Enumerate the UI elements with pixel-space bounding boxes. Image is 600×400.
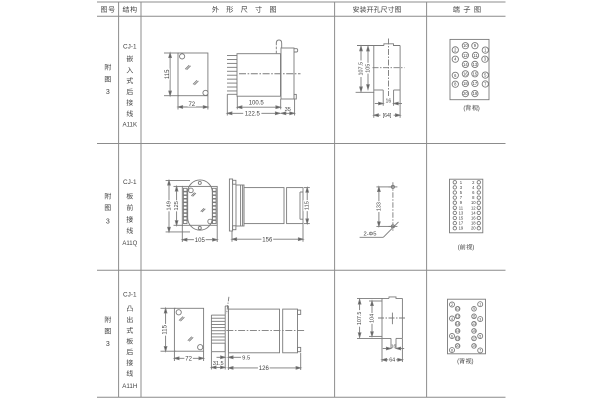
svg-text:[64]: [64] <box>383 113 392 119</box>
svg-text:10: 10 <box>463 43 468 48</box>
svg-text:): ) <box>472 245 474 251</box>
svg-text:107.5: 107.5 <box>357 312 363 326</box>
svg-text:15: 15 <box>473 71 478 76</box>
svg-text:126: 126 <box>259 366 270 372</box>
svg-text:16: 16 <box>391 344 397 349</box>
svg-text:115: 115 <box>165 69 171 79</box>
svg-text:14: 14 <box>463 62 468 67</box>
svg-text:CJ-1: CJ-1 <box>123 179 137 186</box>
svg-text:(: ( <box>457 359 459 365</box>
svg-text:3: 3 <box>106 341 110 348</box>
svg-text:CJ-1: CJ-1 <box>123 292 137 299</box>
svg-text:4: 4 <box>451 317 453 321</box>
svg-text:35: 35 <box>285 107 291 113</box>
svg-text:9: 9 <box>473 307 475 311</box>
svg-text:19: 19 <box>473 91 478 96</box>
svg-text:9.5: 9.5 <box>242 355 250 361</box>
svg-text:2-Φ5: 2-Φ5 <box>363 232 376 238</box>
svg-text:72: 72 <box>188 102 195 108</box>
svg-text:20: 20 <box>456 344 460 348</box>
svg-text:72: 72 <box>185 356 192 362</box>
svg-text:A11Q: A11Q <box>122 241 137 247</box>
svg-text:1: 1 <box>479 302 481 306</box>
svg-text:2: 2 <box>451 303 453 307</box>
svg-text:16: 16 <box>386 98 392 104</box>
svg-text:133: 133 <box>376 202 382 211</box>
svg-text:12: 12 <box>456 314 460 318</box>
svg-text:16: 16 <box>456 329 460 333</box>
svg-text:115: 115 <box>162 324 168 334</box>
svg-text:13: 13 <box>472 322 476 326</box>
svg-text:18: 18 <box>456 337 460 341</box>
svg-text:(: ( <box>463 106 465 112</box>
svg-text:156: 156 <box>262 237 273 243</box>
svg-text:17: 17 <box>473 81 478 86</box>
svg-text:14: 14 <box>456 322 460 326</box>
svg-text:12: 12 <box>463 53 468 58</box>
svg-text:6: 6 <box>451 334 453 338</box>
svg-text:105: 105 <box>195 238 206 244</box>
svg-text:): ) <box>472 359 474 365</box>
svg-text:): ) <box>478 106 480 112</box>
svg-text:7: 7 <box>479 349 481 353</box>
svg-text:107.5: 107.5 <box>358 62 364 76</box>
svg-text:13: 13 <box>473 62 478 67</box>
svg-text:3: 3 <box>479 317 481 321</box>
svg-text:18: 18 <box>463 81 468 86</box>
svg-text:8: 8 <box>451 348 453 352</box>
svg-text:(: ( <box>458 245 460 251</box>
svg-text:125: 125 <box>174 201 180 210</box>
svg-text:100.5: 100.5 <box>249 100 265 106</box>
svg-text:A11K: A11K <box>122 122 138 129</box>
svg-text:16: 16 <box>463 71 468 76</box>
svg-text:11: 11 <box>473 53 478 58</box>
svg-text:19: 19 <box>472 344 476 348</box>
svg-text:20: 20 <box>463 91 468 96</box>
svg-text:10: 10 <box>456 307 460 311</box>
svg-text:31.5: 31.5 <box>213 361 224 367</box>
svg-text:CJ-1: CJ-1 <box>123 43 137 50</box>
svg-text:3: 3 <box>106 218 110 225</box>
svg-text:64: 64 <box>389 358 395 364</box>
svg-text:A11H: A11H <box>122 383 137 390</box>
svg-text:3: 3 <box>106 89 110 96</box>
svg-text:20: 20 <box>471 226 476 231</box>
svg-text:115: 115 <box>305 201 311 210</box>
svg-text:122.5: 122.5 <box>245 111 261 117</box>
svg-text:15: 15 <box>472 329 476 333</box>
svg-text:149: 149 <box>167 201 173 210</box>
svg-text:19: 19 <box>459 226 464 231</box>
svg-text:5: 5 <box>479 334 481 338</box>
svg-text:104: 104 <box>369 314 375 323</box>
svg-text:17: 17 <box>472 337 476 341</box>
svg-text:11: 11 <box>472 314 476 318</box>
svg-text:105: 105 <box>365 64 371 73</box>
